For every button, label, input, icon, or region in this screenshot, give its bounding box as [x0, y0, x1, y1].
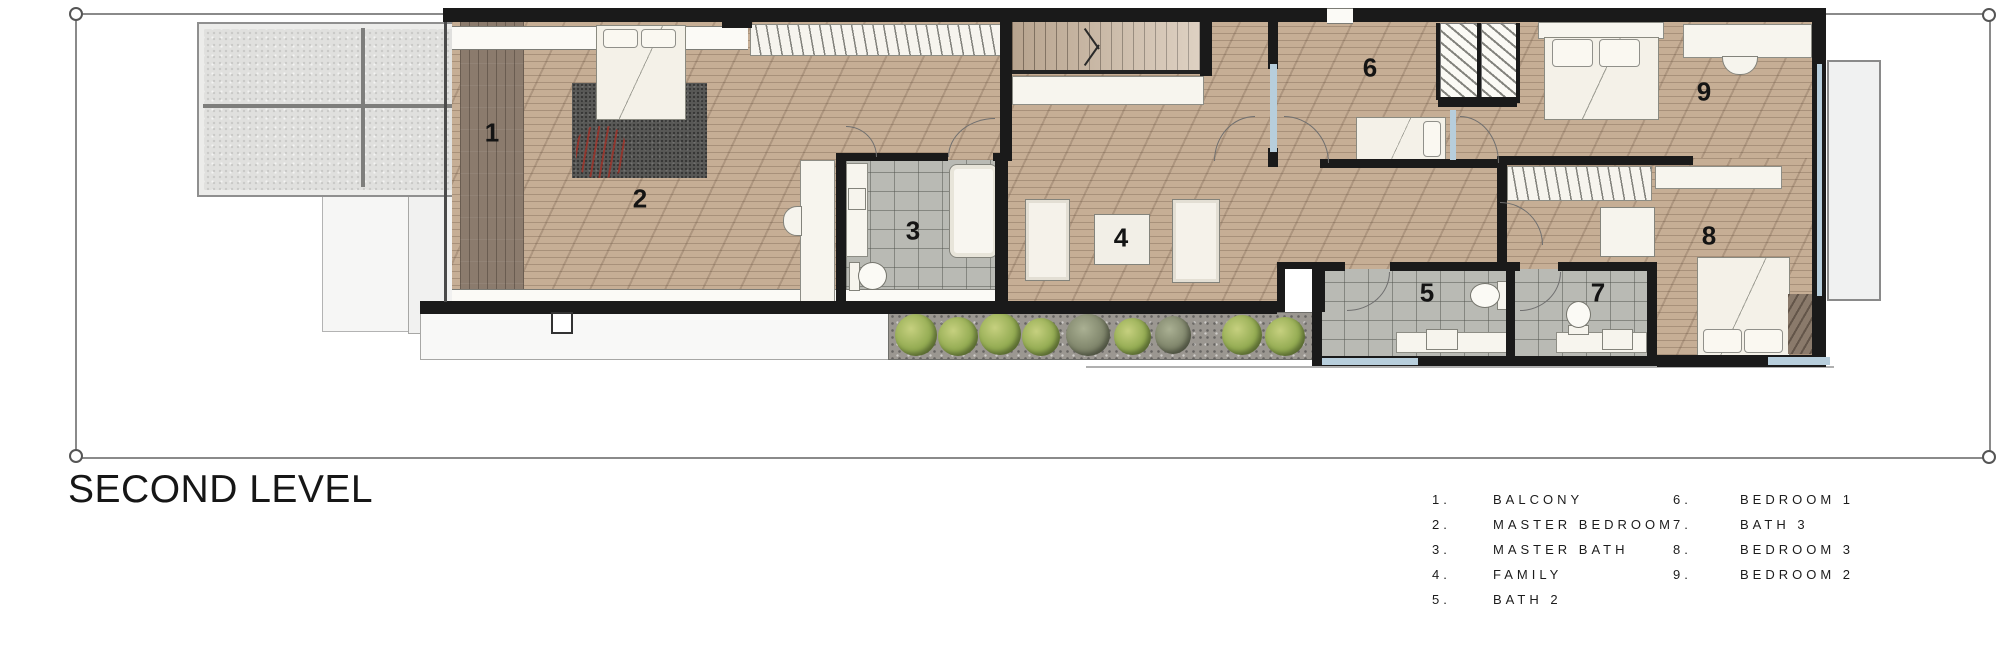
- legend-label: MASTER BEDROOM: [1493, 517, 1674, 532]
- vanity-master-bath: [846, 163, 868, 257]
- pillow: [1552, 39, 1593, 67]
- glazing-right-facade: [1817, 64, 1822, 296]
- shrub: [1265, 317, 1305, 356]
- legend-number: 7.: [1673, 517, 1692, 532]
- legend-number: 9.: [1673, 567, 1692, 582]
- floor-plan-canvas: 1 2 3 4 5 6 7 8 9 SECOND LEVEL 1.BALCONY…: [0, 0, 2000, 658]
- dresser-bedroom3: [1600, 207, 1655, 257]
- red-plant: [576, 126, 626, 178]
- boundary-corner-marker: [69, 449, 83, 463]
- wall: [1647, 262, 1657, 366]
- legend-number: 2.: [1432, 517, 1451, 532]
- stair-handrail-void: [1012, 76, 1204, 105]
- toilet-bowl: [1566, 301, 1591, 328]
- wall: [443, 8, 1814, 22]
- staircase: [1012, 22, 1202, 74]
- wall: [1012, 301, 1277, 314]
- chimney-stub: [551, 312, 573, 334]
- wall: [836, 153, 846, 306]
- legend-label: BALCONY: [1493, 492, 1583, 507]
- desk-bedroom3: [1655, 166, 1782, 189]
- shrub-sage: [1155, 316, 1191, 354]
- wall: [722, 8, 752, 28]
- legend: 1.BALCONY 2.MASTER BEDROOM 3.MASTER BATH…: [1432, 492, 1972, 622]
- wall: [995, 153, 1008, 306]
- wall: [1200, 8, 1212, 76]
- room-marker-bedroom2: 9: [1697, 77, 1711, 108]
- glazing-door: [1450, 110, 1456, 160]
- legend-label: BEDROOM 2: [1740, 567, 1854, 582]
- closet-shelves: [1440, 23, 1478, 101]
- legend-label: BEDROOM 3: [1740, 542, 1854, 557]
- legend-number: 6.: [1673, 492, 1692, 507]
- shrub: [1022, 318, 1060, 356]
- wall: [1312, 262, 1322, 366]
- balcony-deck: [460, 22, 524, 306]
- boundary-corner-marker: [1982, 8, 1996, 22]
- chair-master: [783, 206, 802, 236]
- legend-number: 1.: [1432, 492, 1451, 507]
- legend-label: BATH 3: [1740, 517, 1809, 532]
- room-marker-bath2: 5: [1420, 278, 1434, 309]
- headboard-wood-bedroom3: [1788, 294, 1812, 354]
- roof-deck-pad: [197, 22, 467, 197]
- armchair: [1025, 199, 1070, 281]
- wall: [1516, 23, 1520, 103]
- room-marker-family: 4: [1114, 223, 1128, 254]
- right-roof-outline: [1827, 60, 1881, 301]
- toilet-bowl: [858, 262, 887, 290]
- boundary-corner-marker: [69, 7, 83, 21]
- wall: [420, 301, 1012, 314]
- shrub: [1114, 318, 1151, 355]
- room-marker-balcony: 1: [485, 118, 499, 149]
- pillow: [1703, 329, 1742, 353]
- wardrobe-hangers: [750, 24, 1002, 56]
- wall: [1438, 97, 1517, 107]
- pad-divider: [203, 104, 457, 108]
- legend-number: 3.: [1432, 542, 1451, 557]
- legend-label: BATH 2: [1493, 592, 1562, 607]
- shrub: [1222, 315, 1262, 355]
- glazing-sill: [1768, 357, 1830, 365]
- pillow: [603, 29, 638, 48]
- cabinet-master: [800, 160, 835, 309]
- wall: [1268, 22, 1278, 69]
- room-marker-bedroom1: 6: [1363, 53, 1377, 84]
- lower-terrace-band: [420, 312, 892, 360]
- room-marker-bath3: 7: [1591, 278, 1605, 309]
- wall: [1436, 23, 1440, 100]
- sink: [1602, 329, 1633, 350]
- window-sill: [1327, 8, 1353, 24]
- legend-number: 8.: [1673, 542, 1692, 557]
- shrub: [979, 313, 1021, 355]
- toilet-bowl: [1470, 283, 1500, 308]
- wall: [1503, 156, 1693, 165]
- pillow: [1423, 121, 1441, 157]
- wall: [1558, 262, 1657, 271]
- pillow: [1744, 329, 1783, 353]
- shrub: [938, 317, 978, 356]
- pillow: [641, 29, 676, 48]
- sink: [848, 188, 866, 210]
- wardrobe-hangers-bedroom3: [1507, 166, 1652, 201]
- shrub-sage: [1066, 314, 1110, 356]
- armchair: [1172, 199, 1220, 283]
- legend-label: BEDROOM 1: [1740, 492, 1854, 507]
- page-title: SECOND LEVEL: [68, 468, 373, 512]
- closet-shelves: [1481, 23, 1518, 101]
- boundary-corner-marker: [1982, 450, 1996, 464]
- legend-label: FAMILY: [1493, 567, 1562, 582]
- wall: [1000, 8, 1012, 161]
- room-marker-master-bedroom: 2: [633, 184, 647, 215]
- pillow: [1599, 39, 1640, 67]
- wall: [1506, 262, 1515, 366]
- room-marker-bedroom3: 8: [1702, 221, 1716, 252]
- balcony-glass-line: [444, 22, 447, 302]
- legend-label: MASTER BATH: [1493, 542, 1629, 557]
- legend-number: 5.: [1432, 592, 1451, 607]
- shrub: [895, 314, 937, 356]
- desk-bedroom2: [1683, 24, 1812, 58]
- glazing-sill: [1322, 358, 1418, 365]
- bathtub: [949, 164, 998, 258]
- sink: [1426, 329, 1458, 350]
- wall: [1477, 23, 1481, 100]
- legend-number: 4.: [1432, 567, 1451, 582]
- room-marker-master-bath: 3: [906, 216, 920, 247]
- glazing-door: [1270, 64, 1277, 152]
